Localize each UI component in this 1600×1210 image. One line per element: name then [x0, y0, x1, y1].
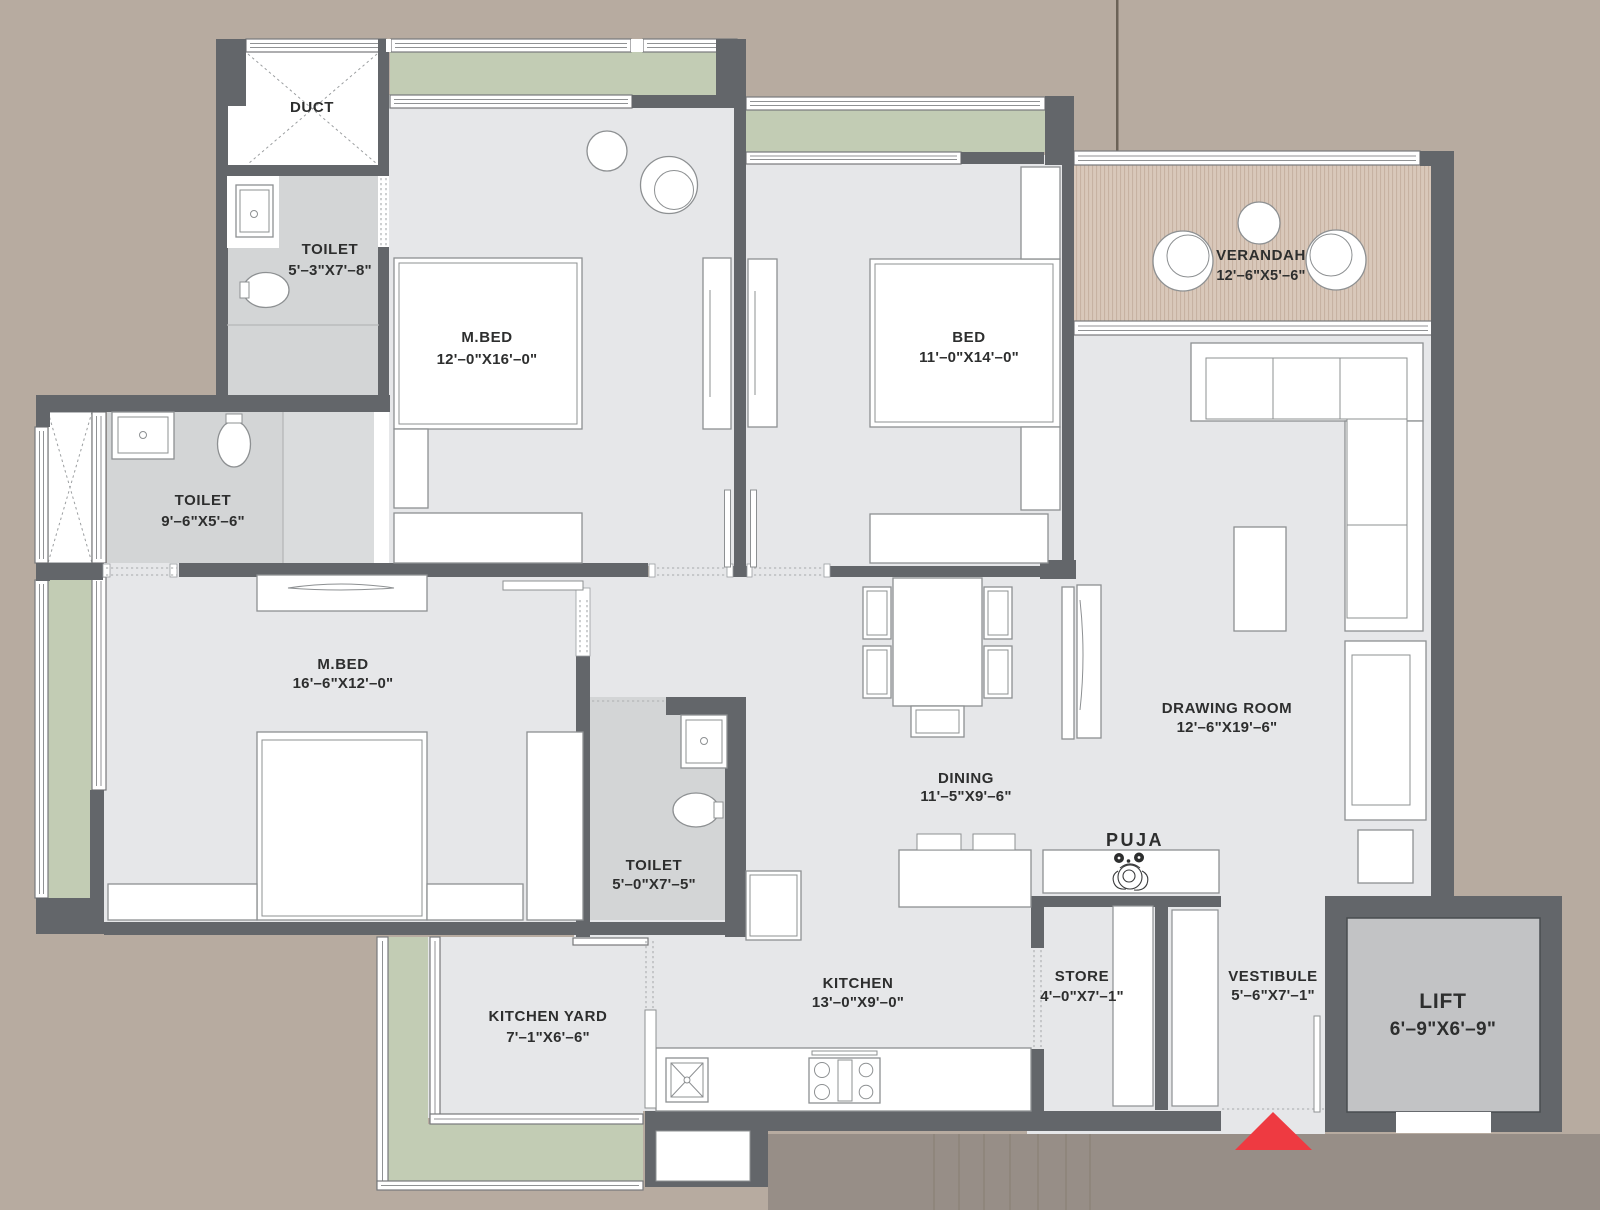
svg-text:KITCHEN YARD: KITCHEN YARD — [489, 1008, 608, 1025]
svg-text:TOILET: TOILET — [626, 857, 683, 874]
svg-text:12'–6"X19'–6": 12'–6"X19'–6" — [1177, 719, 1278, 736]
svg-text:5'–6"X7'–1": 5'–6"X7'–1" — [1231, 987, 1315, 1004]
svg-text:PUJA: PUJA — [1106, 830, 1164, 850]
svg-text:M.BED: M.BED — [317, 656, 368, 673]
svg-text:11'–5"X9'–6": 11'–5"X9'–6" — [920, 788, 1011, 805]
svg-text:6'–9"X6'–9": 6'–9"X6'–9" — [1390, 1019, 1496, 1040]
svg-text:5'–3"X7'–8": 5'–3"X7'–8" — [288, 262, 372, 279]
svg-text:12'–0"X16'–0": 12'–0"X16'–0" — [437, 351, 538, 368]
svg-text:KITCHEN: KITCHEN — [823, 975, 894, 992]
svg-text:VERANDAH: VERANDAH — [1216, 247, 1306, 264]
svg-text:BED: BED — [952, 329, 985, 346]
svg-text:STORE: STORE — [1055, 968, 1109, 985]
svg-text:DRAWING ROOM: DRAWING ROOM — [1162, 700, 1293, 717]
svg-text:TOILET: TOILET — [302, 241, 359, 258]
svg-text:4'–0"X7'–1": 4'–0"X7'–1" — [1040, 988, 1124, 1005]
svg-text:LIFT: LIFT — [1419, 990, 1467, 1013]
svg-text:12'–6"X5'–6": 12'–6"X5'–6" — [1216, 268, 1305, 284]
svg-text:16'–6"X12'–0": 16'–6"X12'–0" — [293, 675, 394, 692]
svg-text:9'–6"X5'–6": 9'–6"X5'–6" — [161, 513, 245, 530]
svg-text:VESTIBULE: VESTIBULE — [1228, 968, 1318, 985]
svg-text:TOILET: TOILET — [175, 492, 232, 509]
svg-text:M.BED: M.BED — [461, 329, 512, 346]
svg-text:11'–0"X14'–0": 11'–0"X14'–0" — [919, 349, 1019, 366]
svg-text:DUCT: DUCT — [290, 99, 334, 116]
svg-text:13'–0"X9'–0": 13'–0"X9'–0" — [812, 994, 904, 1011]
svg-text:5'–0"X7'–5": 5'–0"X7'–5" — [612, 876, 696, 893]
svg-text:7'–1"X6'–6": 7'–1"X6'–6" — [506, 1029, 590, 1046]
svg-text:DINING: DINING — [938, 770, 994, 787]
